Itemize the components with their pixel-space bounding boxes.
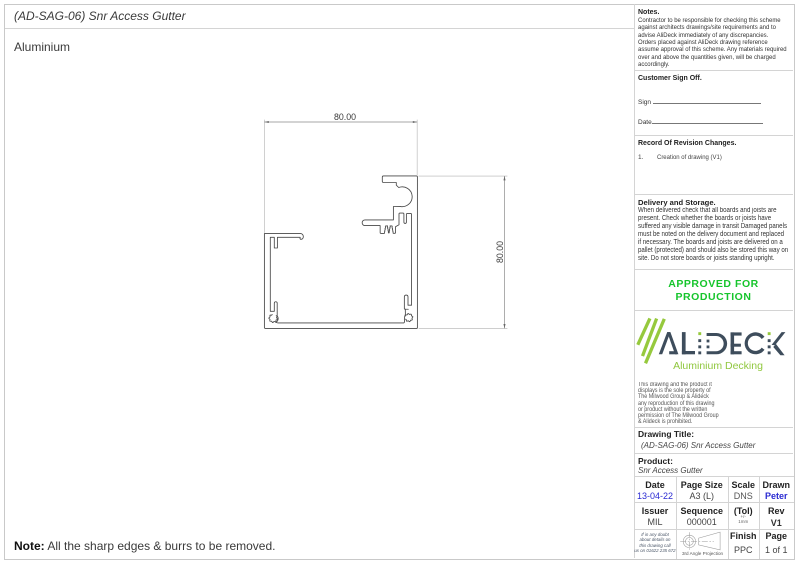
svg-text:80.00: 80.00 [495, 241, 505, 263]
svg-text:80.00: 80.00 [334, 112, 356, 122]
